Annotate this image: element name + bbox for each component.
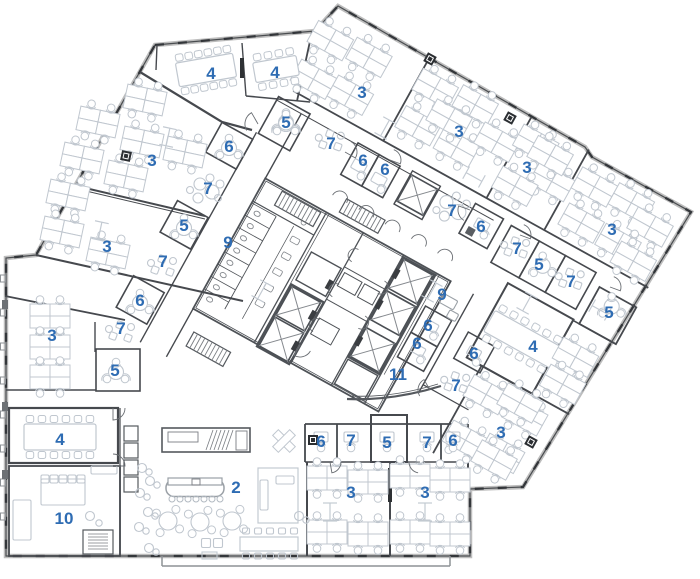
svg-text:6: 6 (224, 137, 233, 156)
svg-text:3: 3 (47, 326, 56, 345)
svg-text:5: 5 (110, 361, 119, 380)
svg-text:3: 3 (607, 220, 616, 239)
svg-text:10: 10 (55, 509, 74, 528)
svg-text:7: 7 (422, 433, 431, 452)
svg-text:5: 5 (534, 255, 543, 274)
svg-text:3: 3 (147, 151, 156, 170)
svg-text:5: 5 (281, 113, 290, 132)
svg-text:6: 6 (316, 432, 325, 451)
svg-text:7: 7 (116, 319, 125, 338)
svg-text:2: 2 (231, 478, 240, 497)
svg-text:7: 7 (346, 431, 355, 450)
svg-text:5: 5 (179, 216, 188, 235)
svg-text:7: 7 (566, 272, 575, 291)
svg-text:3: 3 (357, 83, 366, 102)
svg-text:3: 3 (454, 122, 463, 141)
svg-text:4: 4 (528, 337, 538, 356)
svg-text:4: 4 (206, 64, 216, 83)
svg-text:7: 7 (203, 179, 212, 198)
svg-text:5: 5 (604, 303, 613, 322)
svg-text:5: 5 (382, 433, 391, 452)
svg-text:7: 7 (451, 376, 460, 395)
svg-text:9: 9 (223, 233, 232, 252)
svg-text:6: 6 (380, 160, 389, 179)
svg-text:6: 6 (412, 334, 421, 353)
svg-text:7: 7 (447, 201, 456, 220)
svg-text:3: 3 (102, 237, 111, 256)
svg-text:6: 6 (358, 151, 367, 170)
svg-text:9: 9 (437, 285, 446, 304)
svg-text:4: 4 (55, 430, 65, 449)
svg-text:6: 6 (423, 316, 432, 335)
svg-text:3: 3 (522, 158, 531, 177)
svg-text:3: 3 (496, 423, 505, 442)
svg-text:4: 4 (270, 63, 280, 82)
svg-text:6: 6 (448, 431, 457, 450)
svg-text:7: 7 (326, 134, 335, 153)
svg-text:6: 6 (135, 291, 144, 310)
svg-text:6: 6 (469, 344, 478, 363)
svg-text:7: 7 (158, 252, 167, 271)
svg-text:3: 3 (420, 483, 429, 502)
svg-text:7: 7 (512, 239, 521, 258)
svg-text:6: 6 (476, 217, 485, 236)
svg-text:11: 11 (389, 365, 407, 384)
svg-text:3: 3 (346, 483, 355, 502)
